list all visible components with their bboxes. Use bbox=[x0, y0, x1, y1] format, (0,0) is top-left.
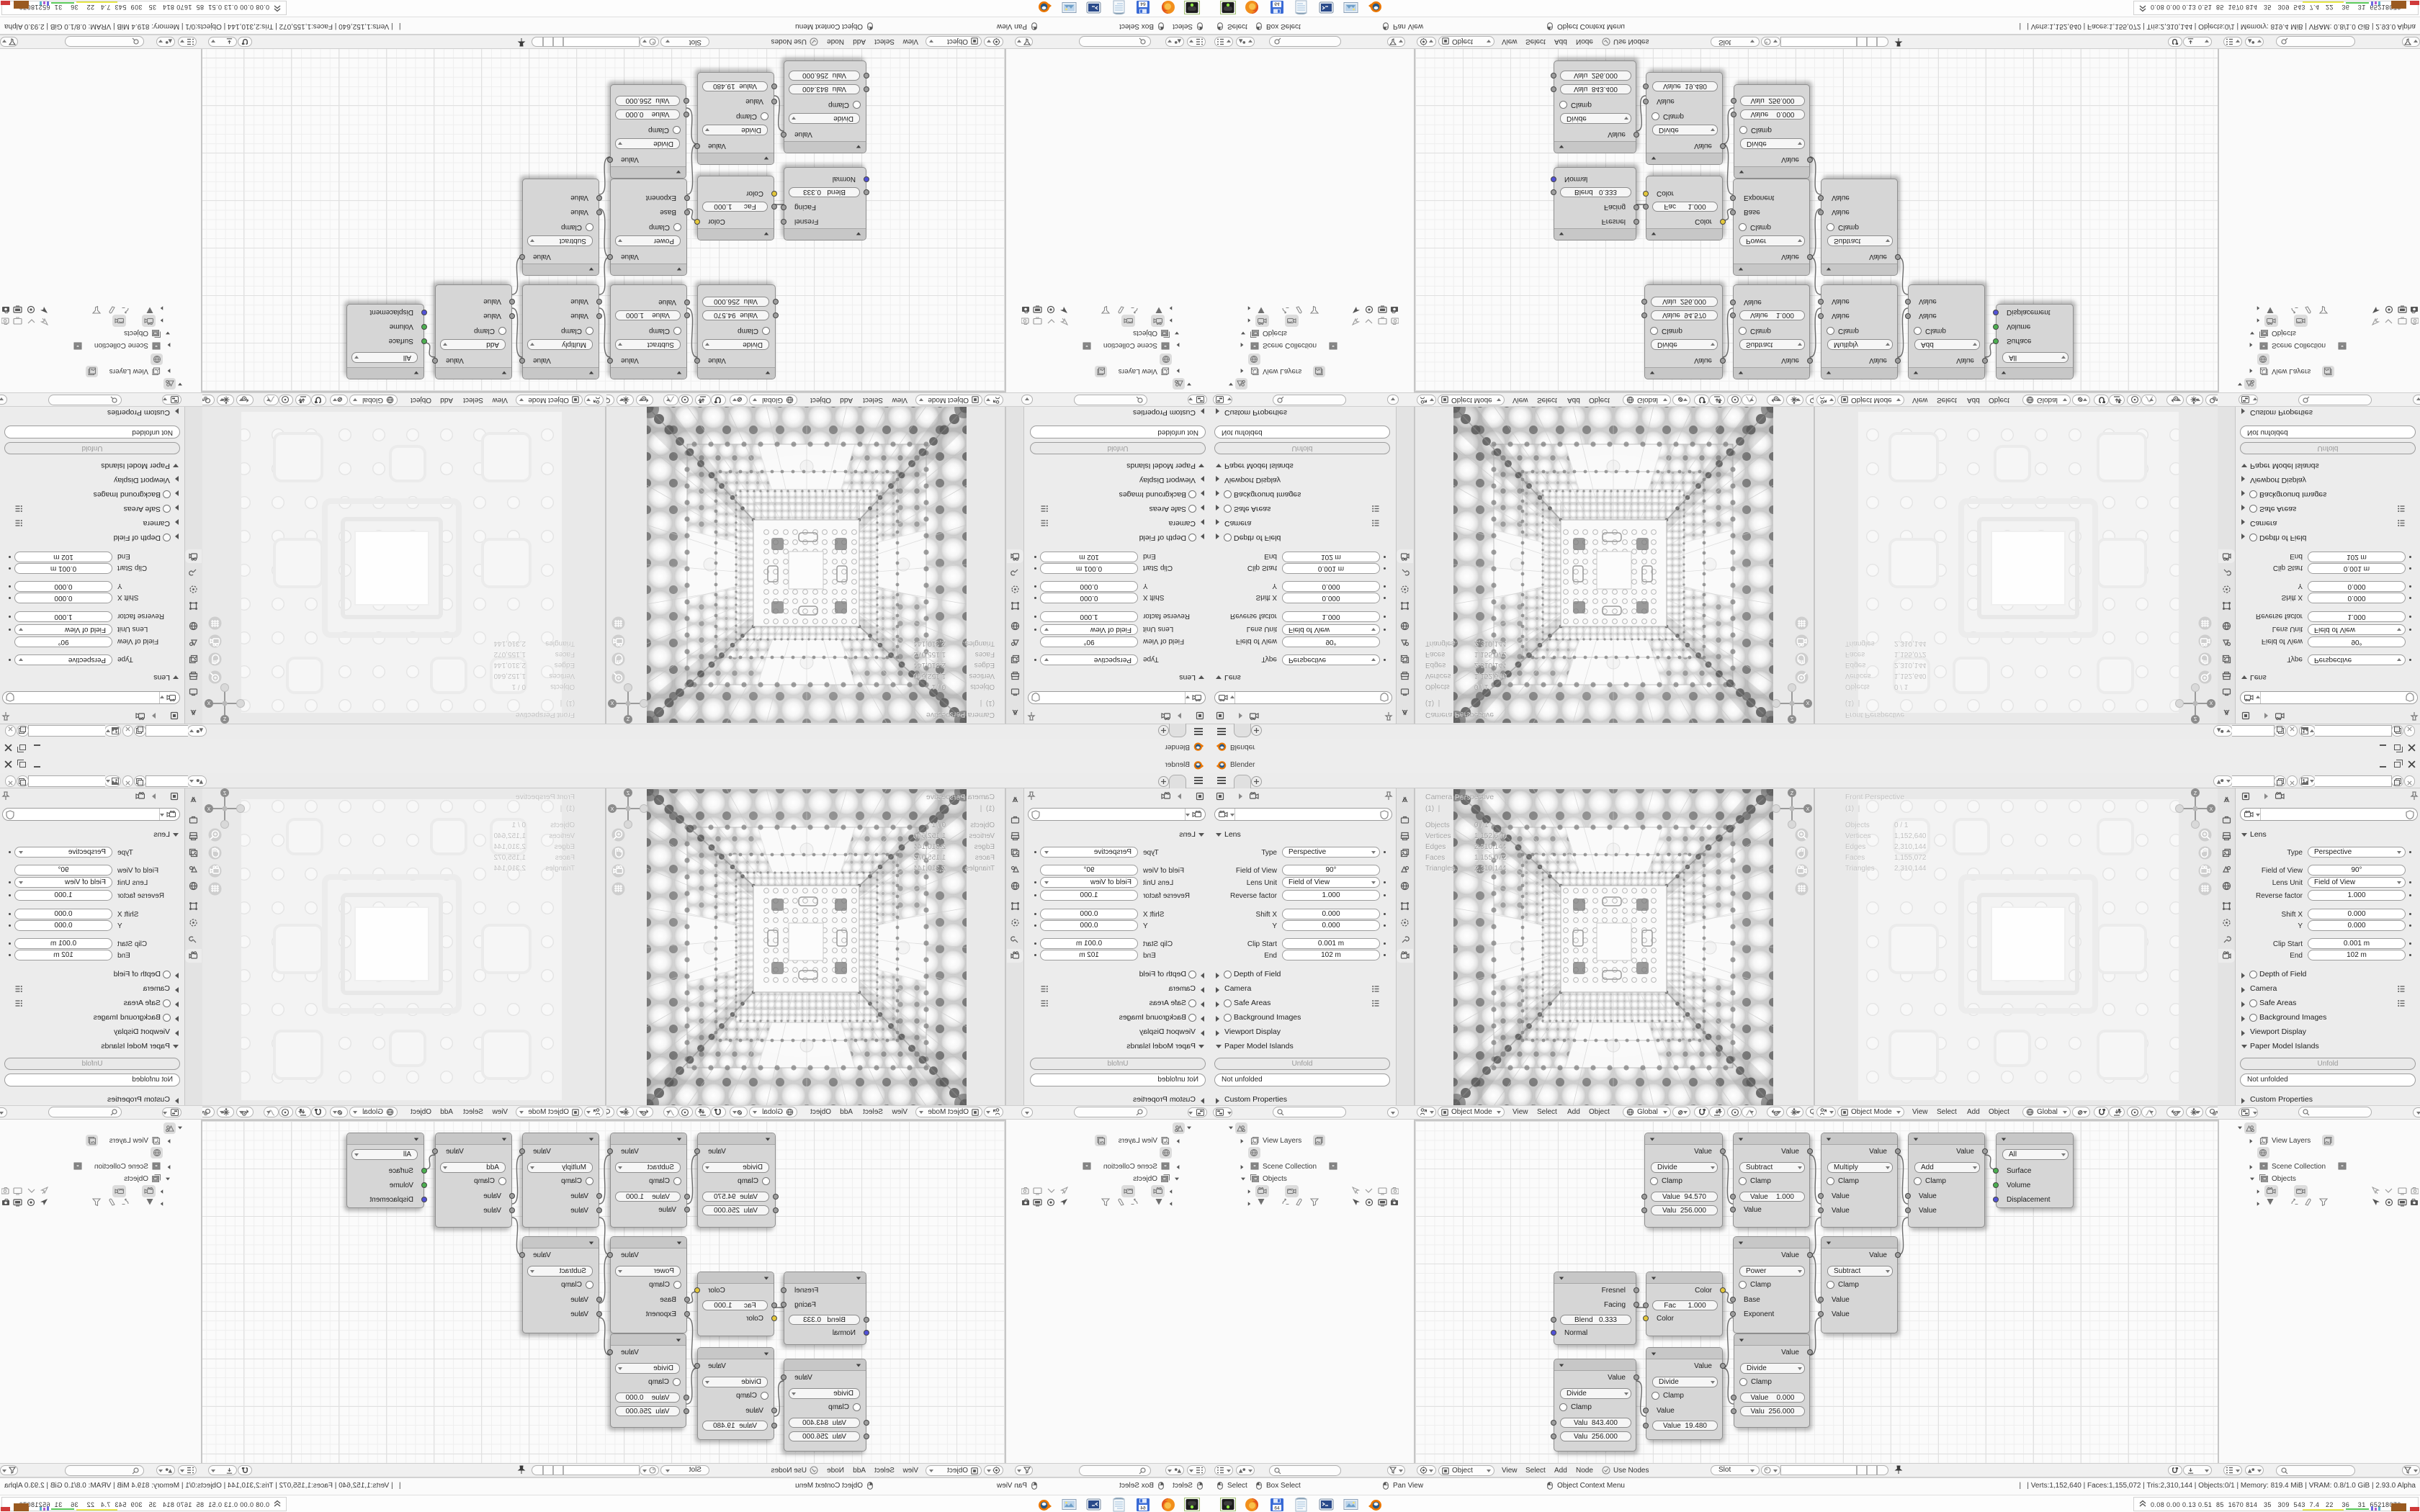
svg-text:64: 64 bbox=[1140, 1506, 1146, 1511]
svg-text:X: X bbox=[207, 700, 210, 705]
svg-text:64: 64 bbox=[1274, 1506, 1280, 1511]
svg-text:X: X bbox=[1806, 807, 1810, 812]
svg-text:X: X bbox=[2210, 807, 2213, 812]
svg-text:Z: Z bbox=[223, 791, 226, 796]
svg-text:Z: Z bbox=[1791, 716, 1794, 721]
svg-text:X: X bbox=[2210, 700, 2213, 705]
svg-text:64: 64 bbox=[1274, 1, 1280, 6]
svg-text:X: X bbox=[1806, 700, 1810, 705]
svg-text:X: X bbox=[610, 807, 614, 812]
svg-text:X: X bbox=[610, 700, 614, 705]
svg-text:Z: Z bbox=[2194, 791, 2197, 796]
svg-text:64: 64 bbox=[1140, 1, 1146, 6]
svg-text:Z: Z bbox=[626, 716, 629, 721]
svg-text:Z: Z bbox=[2194, 716, 2197, 721]
svg-text:Z: Z bbox=[626, 791, 629, 796]
svg-text:Z: Z bbox=[1791, 791, 1794, 796]
svg-text:X: X bbox=[207, 807, 210, 812]
svg-text:Z: Z bbox=[223, 716, 226, 721]
